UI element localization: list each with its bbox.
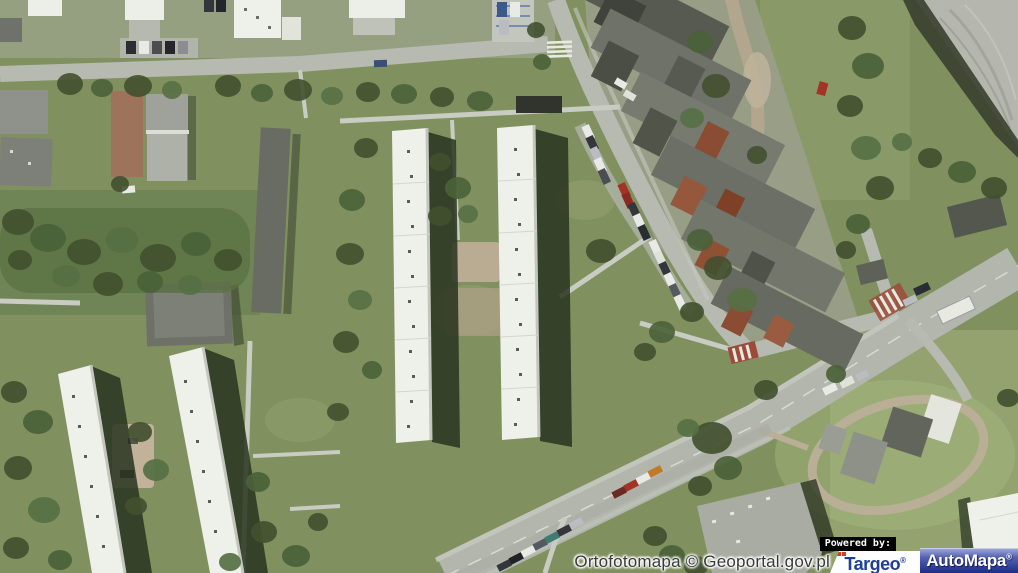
tree	[634, 343, 656, 361]
tree	[91, 79, 113, 97]
tree	[837, 95, 863, 117]
tree	[140, 244, 176, 272]
tree	[458, 205, 478, 223]
tree	[649, 321, 675, 343]
tree	[128, 422, 152, 442]
map-canvas[interactable]	[0, 0, 1018, 573]
building	[353, 18, 395, 35]
roof-vent	[514, 423, 517, 426]
tree	[680, 108, 704, 128]
roof-vent	[519, 373, 522, 376]
building	[129, 20, 160, 44]
tree	[106, 227, 138, 253]
tree	[57, 73, 83, 95]
roof-vent	[96, 515, 99, 518]
roof-vent	[412, 375, 415, 378]
car	[374, 60, 387, 67]
roof-vent	[409, 350, 412, 353]
tree	[533, 54, 551, 70]
roof-vent	[407, 150, 410, 153]
tree	[948, 161, 976, 183]
building	[0, 18, 22, 42]
roof-vent	[214, 530, 217, 533]
tree	[251, 521, 277, 543]
roof-vent	[72, 395, 75, 398]
tree	[8, 250, 32, 270]
tree	[214, 249, 242, 271]
roof-vent	[256, 16, 259, 19]
tree	[727, 288, 757, 312]
roof-vent	[84, 455, 87, 458]
tree	[143, 459, 169, 481]
roof-vent	[514, 198, 517, 201]
tree	[826, 365, 846, 383]
tree	[643, 526, 667, 546]
tree	[754, 380, 778, 400]
tree	[251, 84, 273, 102]
tree	[836, 241, 856, 259]
roof-vent	[407, 200, 410, 203]
school-building	[146, 94, 188, 132]
targeo-registered-mark: ®	[900, 556, 905, 565]
tree	[687, 31, 713, 53]
car	[152, 41, 162, 54]
roof-vent	[202, 470, 205, 473]
tree	[918, 148, 942, 168]
tree	[714, 456, 742, 480]
roof-vent	[190, 410, 193, 413]
tree	[430, 87, 454, 107]
tree	[892, 133, 912, 151]
roof-vent	[411, 225, 414, 228]
path	[0, 301, 80, 303]
car	[497, 2, 507, 17]
tree	[137, 271, 163, 293]
targeo-text: Targeo	[844, 554, 900, 573]
building	[282, 17, 301, 40]
tree	[30, 224, 66, 252]
tree	[246, 472, 270, 492]
building	[516, 96, 562, 113]
roof-vent	[196, 440, 199, 443]
roof-vent	[10, 150, 13, 153]
roof-vent	[517, 398, 520, 401]
roof-vent	[519, 323, 522, 326]
tree	[48, 550, 72, 570]
roof-vent	[411, 275, 414, 278]
roof-vent	[517, 173, 520, 176]
roof-vent	[407, 425, 410, 428]
roof-vent	[410, 400, 413, 403]
car	[126, 41, 136, 54]
school-building	[0, 137, 53, 187]
school-building	[147, 134, 187, 181]
tree	[687, 229, 713, 251]
roof-vent	[518, 273, 521, 276]
roof-vent	[515, 298, 518, 301]
roof-vent	[78, 425, 81, 428]
tree	[997, 389, 1018, 407]
tree	[23, 410, 53, 434]
tree	[3, 537, 29, 559]
roof-vent	[184, 380, 187, 383]
tree	[327, 403, 349, 421]
tree	[428, 206, 452, 226]
roof-vent	[514, 148, 517, 151]
tree	[747, 146, 767, 164]
roof-vent	[102, 545, 105, 548]
roof-vent	[516, 348, 519, 351]
car	[499, 20, 509, 35]
tree	[336, 243, 364, 265]
roof-vent	[518, 223, 521, 226]
tree	[391, 84, 417, 104]
tree	[284, 79, 312, 101]
building	[28, 0, 62, 16]
tree	[445, 177, 471, 199]
tree	[354, 138, 378, 158]
tree	[704, 256, 732, 280]
tree	[2, 209, 34, 235]
tree	[677, 419, 699, 437]
tree	[866, 176, 894, 200]
building	[153, 290, 225, 338]
roof-vent	[28, 162, 31, 165]
map-viewport: Ortofotomapa © Geoportal.gov.pl Powered …	[0, 0, 1018, 573]
school-building	[0, 90, 48, 134]
tree	[586, 239, 616, 263]
roof-vent	[244, 8, 247, 11]
shadow	[535, 129, 572, 447]
tree	[1, 381, 27, 403]
roof-vent	[208, 500, 211, 503]
tree	[467, 91, 493, 111]
car	[165, 41, 175, 54]
map-attribution: Ortofotomapa © Geoportal.gov.pl	[574, 552, 830, 572]
tree	[333, 331, 359, 353]
targeo-logo[interactable]: Targeo®	[830, 551, 920, 573]
tree	[981, 177, 1007, 199]
tree	[348, 290, 372, 310]
tree	[702, 74, 730, 98]
automapa-wordmark: AutoMapa®	[926, 551, 1011, 571]
automapa-text: AutoMapa	[926, 551, 1006, 570]
building	[349, 0, 405, 18]
tree	[125, 497, 147, 515]
tree	[339, 189, 365, 211]
tree	[28, 497, 60, 523]
tree	[527, 22, 545, 38]
tree	[429, 153, 451, 171]
tree	[181, 232, 211, 256]
worn-grass	[265, 398, 335, 442]
sports-court	[111, 91, 143, 177]
tree	[851, 136, 881, 160]
tree	[67, 239, 101, 265]
automapa-registered-mark: ®	[1006, 552, 1012, 561]
roof-vent	[408, 300, 411, 303]
tree	[178, 275, 202, 295]
roof-vent	[515, 248, 518, 251]
tree	[4, 456, 32, 480]
shadow	[188, 96, 196, 180]
targeo-red-accent-icon	[837, 552, 847, 556]
roof-vent	[90, 485, 93, 488]
powered-by-label: Powered by:	[820, 537, 896, 551]
car	[216, 0, 226, 12]
roof-line	[146, 130, 189, 134]
sand-area	[452, 242, 500, 282]
tree	[111, 176, 129, 192]
roof-vent	[412, 325, 415, 328]
roof-vent	[410, 175, 413, 178]
tree	[219, 553, 241, 571]
tree	[680, 302, 704, 322]
tree	[321, 87, 343, 105]
roof-vent	[408, 250, 411, 253]
tree	[852, 53, 884, 79]
tree	[308, 513, 328, 531]
tree	[356, 82, 380, 102]
tree	[215, 75, 241, 97]
targeo-wordmark: Targeo®	[844, 551, 905, 573]
tree	[282, 545, 310, 567]
tree	[162, 81, 182, 99]
car	[178, 41, 188, 54]
building	[125, 0, 164, 20]
car	[204, 0, 214, 12]
tree	[93, 272, 123, 296]
roof-vent	[268, 26, 271, 29]
tree	[124, 75, 152, 97]
car	[510, 2, 520, 17]
apartment-block	[497, 125, 539, 440]
tree	[688, 476, 712, 496]
automapa-logo[interactable]: AutoMapa®	[920, 548, 1018, 573]
car	[139, 41, 149, 54]
tree	[52, 265, 80, 287]
tree	[362, 361, 382, 379]
tree	[838, 16, 866, 40]
tree	[846, 214, 870, 234]
